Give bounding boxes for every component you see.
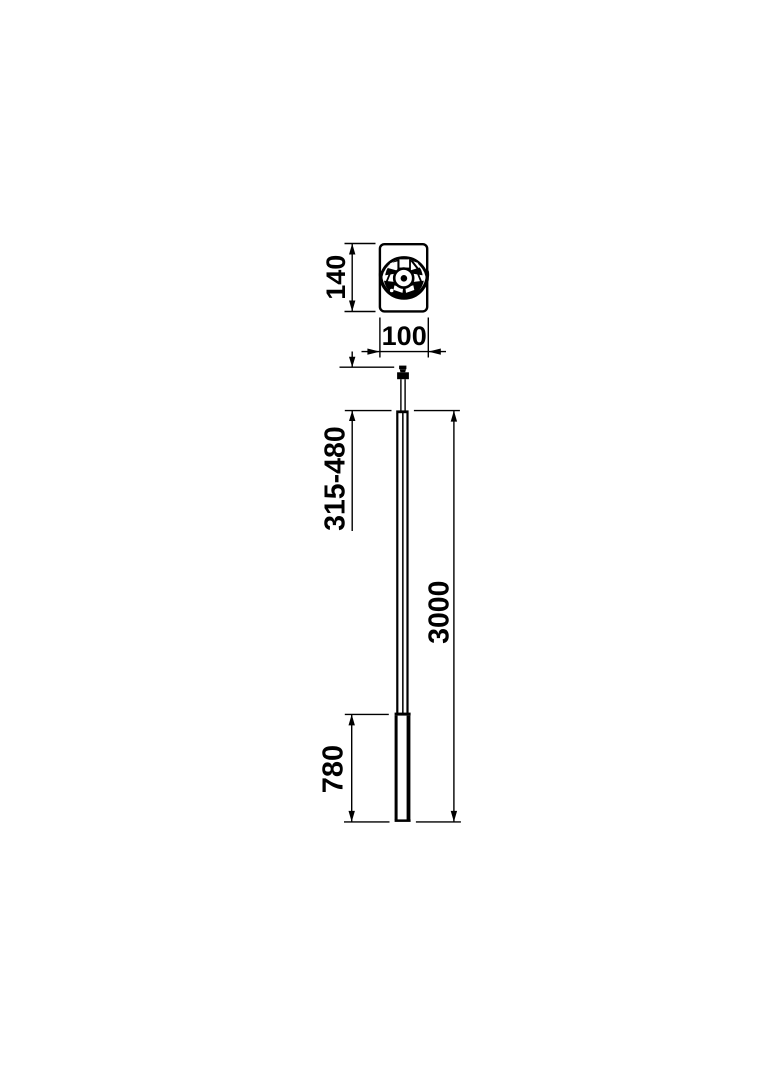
svg-text:100: 100	[382, 321, 427, 351]
svg-text:140: 140	[321, 255, 351, 300]
svg-text:3000: 3000	[423, 580, 455, 643]
svg-text:780: 780	[318, 745, 350, 793]
svg-text:315-480: 315-480	[320, 426, 352, 531]
